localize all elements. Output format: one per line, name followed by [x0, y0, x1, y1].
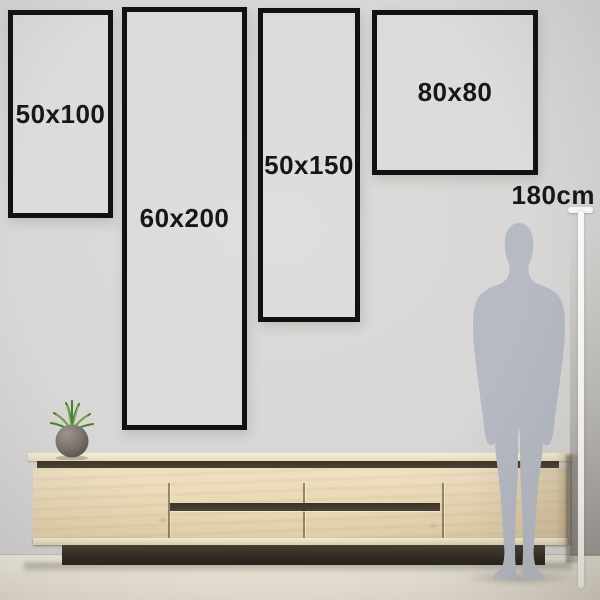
person-silhouette: [471, 222, 567, 582]
sideboard-handle-slot: [170, 503, 440, 511]
height-measure-line: [578, 211, 584, 588]
person-silhouette-graphic: [471, 222, 567, 582]
potted-plant-graphic: [49, 400, 95, 460]
wall-corner-shade: [570, 220, 600, 556]
size-frame-label: 80x80: [418, 77, 493, 108]
potted-plant: [49, 400, 95, 460]
size-frame-60x200: 60x200: [122, 7, 247, 430]
size-frame-label: 50x100: [16, 99, 106, 130]
size-frame-label: 50x150: [264, 150, 354, 181]
size-frame-80x80: 80x80: [372, 10, 538, 175]
size-frame-50x100: 50x100: [8, 10, 113, 218]
scene-canvas: 50x100 60x200 50x150 80x80: [0, 0, 600, 600]
size-frame-50x150: 50x150: [258, 8, 360, 322]
size-frame-label: 60x200: [140, 203, 230, 234]
